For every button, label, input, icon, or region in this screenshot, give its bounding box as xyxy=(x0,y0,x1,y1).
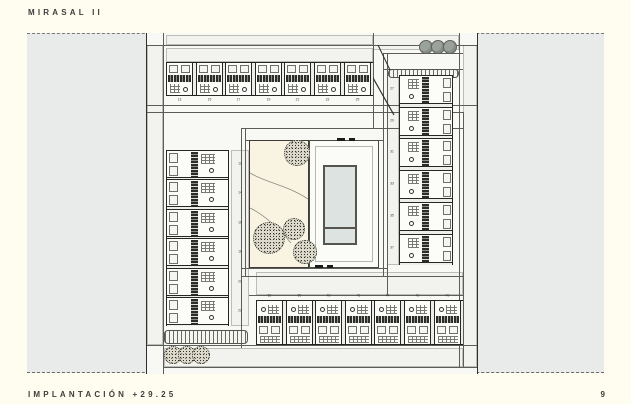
housing-unit xyxy=(399,170,453,199)
unit-number: 37 xyxy=(389,246,396,249)
unit-number: 14 xyxy=(237,192,244,195)
road-line xyxy=(373,33,374,128)
housing-unit xyxy=(315,300,342,345)
unit-number: 15 xyxy=(202,98,217,101)
housing-unit xyxy=(399,234,453,263)
street-tree xyxy=(443,40,457,54)
unit-number: 42 xyxy=(410,294,425,297)
ground-texture xyxy=(387,75,399,265)
site-plan-drawing: 1315171921232552504846444240121416182022… xyxy=(146,33,478,374)
housing-unit xyxy=(284,62,311,96)
housing-unit xyxy=(399,202,453,231)
project-title: MIRASAL II xyxy=(28,8,103,17)
swimming-pool xyxy=(323,165,357,245)
housing-unit xyxy=(166,268,229,296)
road-line xyxy=(241,268,387,269)
unit-number: 44 xyxy=(380,294,395,297)
unit-number: 12 xyxy=(237,162,244,165)
housing-unit xyxy=(255,62,282,96)
unit-number: 29 xyxy=(389,119,396,122)
housing-unit xyxy=(166,238,229,266)
deck-entry-mark xyxy=(349,138,355,141)
garden-tree xyxy=(192,346,210,364)
road-line xyxy=(383,53,384,276)
unit-number: 17 xyxy=(231,98,246,101)
unit-number: 48 xyxy=(321,294,336,297)
ground-texture xyxy=(166,35,373,45)
housing-unit xyxy=(374,300,401,345)
unit-number: 25 xyxy=(350,98,365,101)
unit-number: 16 xyxy=(237,221,244,224)
housing-unit xyxy=(399,138,453,167)
unit-number: 27 xyxy=(389,87,396,90)
housing-unit xyxy=(256,300,283,345)
pool-lane-divider xyxy=(325,227,355,229)
ground-texture xyxy=(147,45,163,345)
ground-texture xyxy=(166,48,373,62)
presentation-page: MIRASAL II 13151719212325525048464442401… xyxy=(0,0,631,404)
garden-tree xyxy=(253,222,285,254)
unit-number: 18 xyxy=(237,251,244,254)
garden-tree xyxy=(293,240,317,264)
unit-number: 20 xyxy=(237,280,244,283)
unit-number: 21 xyxy=(290,98,305,101)
road-line xyxy=(163,33,164,374)
housing-unit xyxy=(166,179,229,207)
housing-unit xyxy=(196,62,223,96)
ground-texture xyxy=(463,45,477,367)
pergola-hatch xyxy=(164,330,248,344)
deck-entry-mark xyxy=(337,138,345,141)
housing-unit xyxy=(166,62,193,96)
road-line xyxy=(164,367,477,368)
road-line xyxy=(241,276,463,277)
unit-number: 33 xyxy=(389,182,396,185)
housing-unit xyxy=(344,62,371,96)
garden-tree xyxy=(283,218,305,240)
deck-entry-mark xyxy=(327,265,333,268)
drawing-caption: IMPLANTACIÓN +29.25 xyxy=(28,390,176,399)
housing-unit xyxy=(314,62,341,96)
housing-unit xyxy=(166,150,229,178)
housing-unit xyxy=(404,300,431,345)
housing-unit xyxy=(225,62,252,96)
road-line xyxy=(387,53,388,295)
unit-number: 46 xyxy=(351,294,366,297)
unit-number: 31 xyxy=(389,151,396,154)
housing-unit xyxy=(434,300,461,345)
road-line xyxy=(463,112,464,367)
deck-entry-mark xyxy=(315,265,323,268)
unit-number: 22 xyxy=(237,309,244,312)
unit-number: 52 xyxy=(262,294,277,297)
unit-number: 19 xyxy=(261,98,276,101)
unit-number: 40 xyxy=(440,294,455,297)
housing-unit xyxy=(166,209,229,237)
housing-unit xyxy=(399,107,453,136)
housing-unit xyxy=(166,297,229,325)
housing-unit xyxy=(399,75,453,104)
unit-number: 13 xyxy=(172,98,187,101)
ground-texture xyxy=(231,150,249,326)
housing-unit xyxy=(286,300,313,345)
unit-number: 50 xyxy=(292,294,307,297)
road-line xyxy=(241,128,242,348)
unit-number: 35 xyxy=(389,214,396,217)
page-number: 9 xyxy=(601,390,605,399)
unit-number: 23 xyxy=(320,98,335,101)
road-line xyxy=(245,128,246,276)
garden-tree xyxy=(284,140,310,166)
housing-unit xyxy=(345,300,372,345)
